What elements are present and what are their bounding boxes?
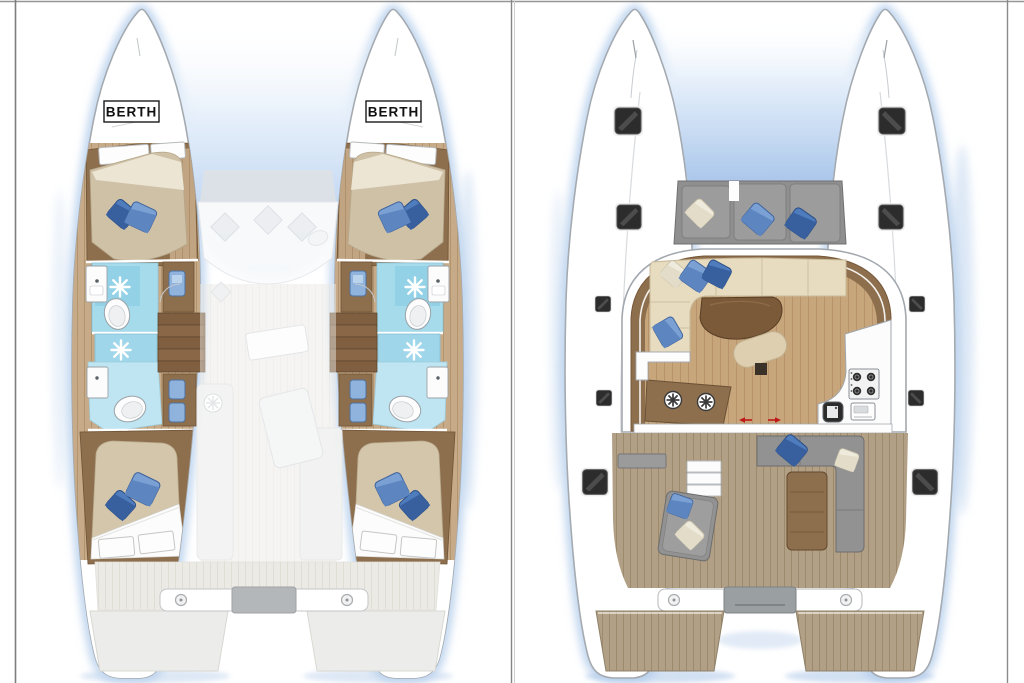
berth-label-starboard: BERTH — [366, 101, 421, 122]
lower-deck-plan: BERTH BERTH — [52, 9, 478, 683]
swim-platform-port — [596, 611, 724, 671]
swim-platform-starboard — [307, 611, 445, 671]
forward-cockpit-seating — [674, 181, 846, 244]
catamaran-layout-page: BERTH BERTH — [0, 0, 1024, 683]
cockpit-sideboard — [618, 454, 666, 468]
berth-label-port-text: BERTH — [106, 105, 158, 120]
stove-icon — [849, 369, 879, 399]
saloon — [622, 249, 906, 433]
swim-platform-port — [90, 611, 228, 671]
cockpit-steps — [687, 461, 721, 496]
main-deck-plan — [550, 9, 974, 683]
swim-platform-starboard — [796, 611, 924, 671]
catamaran-layout-diagram: BERTH BERTH — [0, 0, 1024, 683]
cockpit-table — [787, 472, 827, 550]
chart-console — [645, 380, 731, 426]
ghosted-saloon — [197, 170, 342, 597]
sliding-door-wall — [634, 424, 892, 433]
cockpit — [612, 433, 908, 588]
berth-label-starboard-text: BERTH — [368, 105, 420, 120]
mast-post — [755, 363, 767, 375]
berth-label-port: BERTH — [104, 101, 159, 122]
